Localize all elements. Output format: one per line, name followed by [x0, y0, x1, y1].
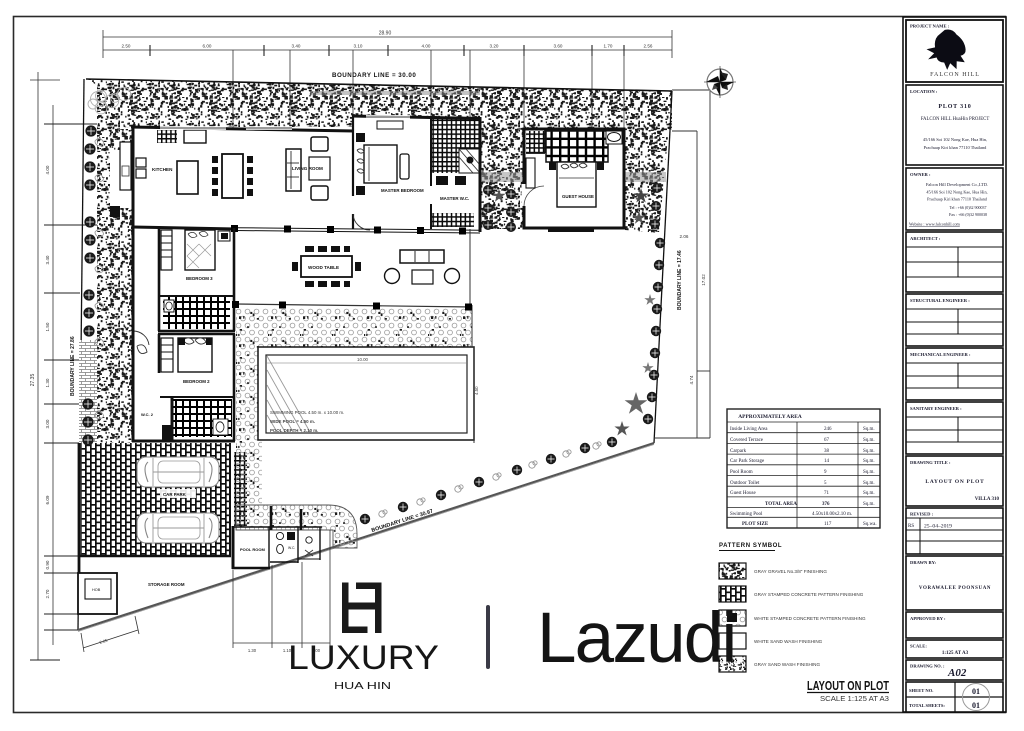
- svg-text:3.20: 3.20: [490, 44, 499, 49]
- svg-text:A02: A02: [947, 667, 967, 679]
- svg-text:STRUCTURAL ENGINEER :: STRUCTURAL ENGINEER :: [910, 298, 970, 303]
- svg-text:KITCHEN: KITCHEN: [152, 167, 173, 172]
- svg-text:2.56: 2.56: [644, 44, 653, 49]
- svg-text:DRAWN BY:: DRAWN BY:: [910, 560, 936, 565]
- svg-text:LOCATION :: LOCATION :: [910, 89, 938, 94]
- svg-text:WIDE POOL = 4.50 m.: WIDE POOL = 4.50 m.: [270, 419, 315, 424]
- svg-text:SHEET NO.: SHEET NO.: [909, 688, 933, 693]
- svg-text:2.06: 2.06: [680, 234, 689, 239]
- svg-text:GRAY GRAVEL No.3/8" FINISHIN: GRAY GRAVEL No.3/8" FINISHING: [754, 569, 827, 574]
- svg-text:Pool Room: Pool Room: [730, 470, 753, 475]
- svg-text:Sq.m.: Sq.m.: [863, 459, 875, 464]
- svg-text:4.50: 4.50: [474, 386, 479, 395]
- svg-text:GUEST HOUSE: GUEST HOUSE: [562, 194, 594, 199]
- svg-text:BOUNDARY LINE = 30.00: BOUNDARY LINE = 30.00: [332, 72, 416, 79]
- svg-text:APPROXIMATELY AREA: APPROXIMATELY AREA: [738, 414, 802, 420]
- svg-text:HOB: HOB: [92, 588, 101, 592]
- svg-text:246: 246: [824, 427, 832, 432]
- svg-text:1.30: 1.30: [45, 378, 50, 387]
- svg-text:BEDROOM 2: BEDROOM 2: [183, 379, 210, 384]
- svg-text:Covered Terrace: Covered Terrace: [730, 438, 764, 443]
- svg-text:GRAY SAND WASH FINISHING: GRAY SAND WASH FINISHING: [754, 662, 820, 667]
- svg-text:1.70: 1.70: [604, 44, 613, 49]
- svg-text:VILLA 310: VILLA 310: [975, 497, 1000, 502]
- svg-text:OWNER :: OWNER :: [910, 172, 931, 177]
- svg-text:WHITE SAND WASH FINISHING: WHITE SAND WASH FINISHING: [754, 639, 823, 644]
- svg-text:BEDROOM 3: BEDROOM 3: [186, 276, 213, 281]
- svg-text:MASTER W.C.: MASTER W.C.: [440, 196, 469, 201]
- svg-text:3.40: 3.40: [292, 44, 301, 49]
- svg-text:SANITARY ENGINEER :: SANITARY ENGINEER :: [910, 406, 962, 411]
- svg-text:SCALE 1:125 AT A3: SCALE 1:125 AT A3: [820, 694, 889, 703]
- svg-text:TOTAL SHEETS:: TOTAL SHEETS:: [909, 703, 945, 708]
- svg-text:Website : www.falconhill.com: Website : www.falconhill.com: [909, 222, 961, 227]
- svg-text:DRAWING NO. :: DRAWING NO. :: [910, 664, 945, 669]
- svg-text:RS: RS: [908, 524, 914, 529]
- svg-text:17.02: 17.02: [701, 274, 706, 286]
- svg-text:1:125 AT A3: 1:125 AT A3: [942, 651, 969, 656]
- svg-text:PATTERN SYMBOL: PATTERN SYMBOL: [719, 543, 782, 549]
- svg-text:SWIMMING POOL 4.50 m. x 10.0: SWIMMING POOL 4.50 m. x 10.00 m.: [270, 410, 344, 415]
- svg-text:27.35: 27.35: [30, 374, 36, 387]
- svg-text:CAR PARK: CAR PARK: [163, 492, 187, 497]
- svg-text:376: 376: [822, 502, 830, 507]
- svg-text:POOL DEPTH = 2.10 m.: POOL DEPTH = 2.10 m.: [270, 428, 318, 433]
- svg-text:Fax : +66 (0)32 900038: Fax : +66 (0)32 900038: [949, 212, 987, 217]
- svg-text:DRAWING TITLE :: DRAWING TITLE :: [910, 460, 951, 465]
- svg-text:Inside Living Area: Inside Living Area: [730, 427, 768, 432]
- svg-text:Prachuap Kiri khan 77110 Thai: Prachuap Kiri khan 77110 Thailand: [924, 145, 987, 150]
- svg-text:Sq.m.: Sq.m.: [863, 481, 875, 486]
- svg-text:1.50: 1.50: [45, 322, 50, 331]
- svg-text:LAYOUT ON PLOT: LAYOUT ON PLOT: [925, 479, 984, 485]
- svg-text:4.00: 4.00: [45, 165, 50, 174]
- svg-text:STORAGE ROOM: STORAGE ROOM: [148, 582, 185, 587]
- svg-text:4.50x10.00x2.10 m.: 4.50x10.00x2.10 m.: [812, 512, 852, 517]
- svg-text:10.00: 10.00: [357, 357, 369, 362]
- svg-text:Carpark: Carpark: [730, 449, 747, 454]
- svg-text:4.00: 4.00: [422, 44, 431, 49]
- svg-text:3.40: 3.40: [45, 255, 50, 264]
- svg-text:Sq.wa.: Sq.wa.: [863, 522, 877, 527]
- svg-text:LIVING ROOM: LIVING ROOM: [292, 166, 323, 171]
- svg-text:25–04–2019: 25–04–2019: [924, 524, 952, 530]
- svg-text:SCALE:: SCALE:: [910, 644, 927, 649]
- svg-text:3.10: 3.10: [354, 44, 363, 49]
- svg-text:Outdoor Toilet: Outdoor Toilet: [730, 481, 760, 486]
- svg-text:14: 14: [824, 459, 830, 464]
- svg-text:Lazudi: Lazudi: [537, 599, 735, 678]
- svg-text:67: 67: [824, 438, 830, 443]
- svg-text:WHITE STAMPED CONCRETE PATTER: WHITE STAMPED CONCRETE PATTERN FINISHING: [754, 616, 866, 621]
- svg-text:PLOT SIZE: PLOT SIZE: [742, 522, 769, 527]
- svg-text:PROJECT NAME :: PROJECT NAME :: [910, 24, 950, 29]
- svg-text:FALCON HILL HuaHin PROJECT: FALCON HILL HuaHin PROJECT: [921, 117, 990, 122]
- svg-text:Sq.m.: Sq.m.: [863, 502, 875, 507]
- svg-text:Tel : +66 (0)32 900037: Tel : +66 (0)32 900037: [949, 205, 986, 210]
- svg-text:2.70: 2.70: [45, 589, 50, 598]
- svg-text:ARCHITECT :: ARCHITECT :: [910, 236, 941, 241]
- svg-text:71: 71: [824, 491, 830, 496]
- svg-text:Swimming Pool: Swimming Pool: [730, 512, 763, 517]
- svg-text:BOUNDARY LINE = 17.46: BOUNDARY LINE = 17.46: [677, 250, 683, 310]
- svg-text:0.90: 0.90: [45, 560, 50, 569]
- svg-text:Sq.m.: Sq.m.: [863, 449, 875, 454]
- svg-text:6.09: 6.09: [45, 495, 50, 504]
- svg-text:28.90: 28.90: [379, 31, 392, 37]
- svg-text:POOL ROOM: POOL ROOM: [240, 547, 265, 552]
- svg-text:Sq.m.: Sq.m.: [863, 427, 875, 432]
- svg-text:Sq.m.: Sq.m.: [863, 470, 875, 475]
- svg-text:WOOD TABLE: WOOD TABLE: [308, 265, 339, 270]
- svg-text:VORAWALEE POONSUAN: VORAWALEE POONSUAN: [919, 586, 991, 591]
- svg-text:38: 38: [824, 449, 830, 454]
- svg-text:TOTAL AREA: TOTAL AREA: [765, 502, 797, 507]
- svg-text:3.60: 3.60: [554, 44, 563, 49]
- svg-text:3.00: 3.00: [45, 419, 50, 428]
- svg-text:6.00: 6.00: [203, 44, 212, 49]
- svg-text:Sq.m.: Sq.m.: [863, 491, 875, 496]
- svg-text:Guest House: Guest House: [730, 491, 756, 496]
- svg-text:1.30: 1.30: [248, 648, 257, 653]
- svg-text:LUXURY: LUXURY: [288, 639, 439, 677]
- svg-text:2.50: 2.50: [122, 44, 131, 49]
- svg-text:MASTER BEDROOM: MASTER BEDROOM: [381, 188, 424, 193]
- svg-text:FALCON HILL: FALCON HILL: [930, 72, 980, 78]
- svg-text:GRAY STAMPED CONCRETE PATTERN: GRAY STAMPED CONCRETE PATTERN FINISHING: [754, 592, 864, 597]
- svg-text:Car Park Storage: Car Park Storage: [730, 459, 765, 464]
- svg-text:MECHANICAL ENGINEER :: MECHANICAL ENGINEER :: [910, 352, 971, 357]
- svg-text:Prachuap Kiri khan 77110 Thai: Prachuap Kiri khan 77110 Thailand: [927, 197, 988, 202]
- svg-text:PLOT 310: PLOT 310: [938, 104, 971, 110]
- svg-text:117: 117: [824, 522, 832, 527]
- svg-text:BOUNDARY LINE = 27.86: BOUNDARY LINE = 27.86: [70, 336, 76, 396]
- svg-text:01: 01: [972, 687, 980, 696]
- svg-text:W.C. 2: W.C. 2: [141, 412, 154, 417]
- svg-text:LAYOUT ON PLOT: LAYOUT ON PLOT: [807, 679, 889, 693]
- svg-text:Sq.m.: Sq.m.: [863, 438, 875, 443]
- svg-text:W.C.: W.C.: [288, 546, 295, 550]
- svg-text:4.74: 4.74: [689, 375, 694, 384]
- svg-text:REVISED :: REVISED :: [910, 512, 934, 517]
- svg-text:01: 01: [972, 701, 980, 710]
- svg-text:HUA HIN: HUA HIN: [334, 680, 391, 692]
- svg-text:APPROVED BY :: APPROVED BY :: [910, 616, 946, 621]
